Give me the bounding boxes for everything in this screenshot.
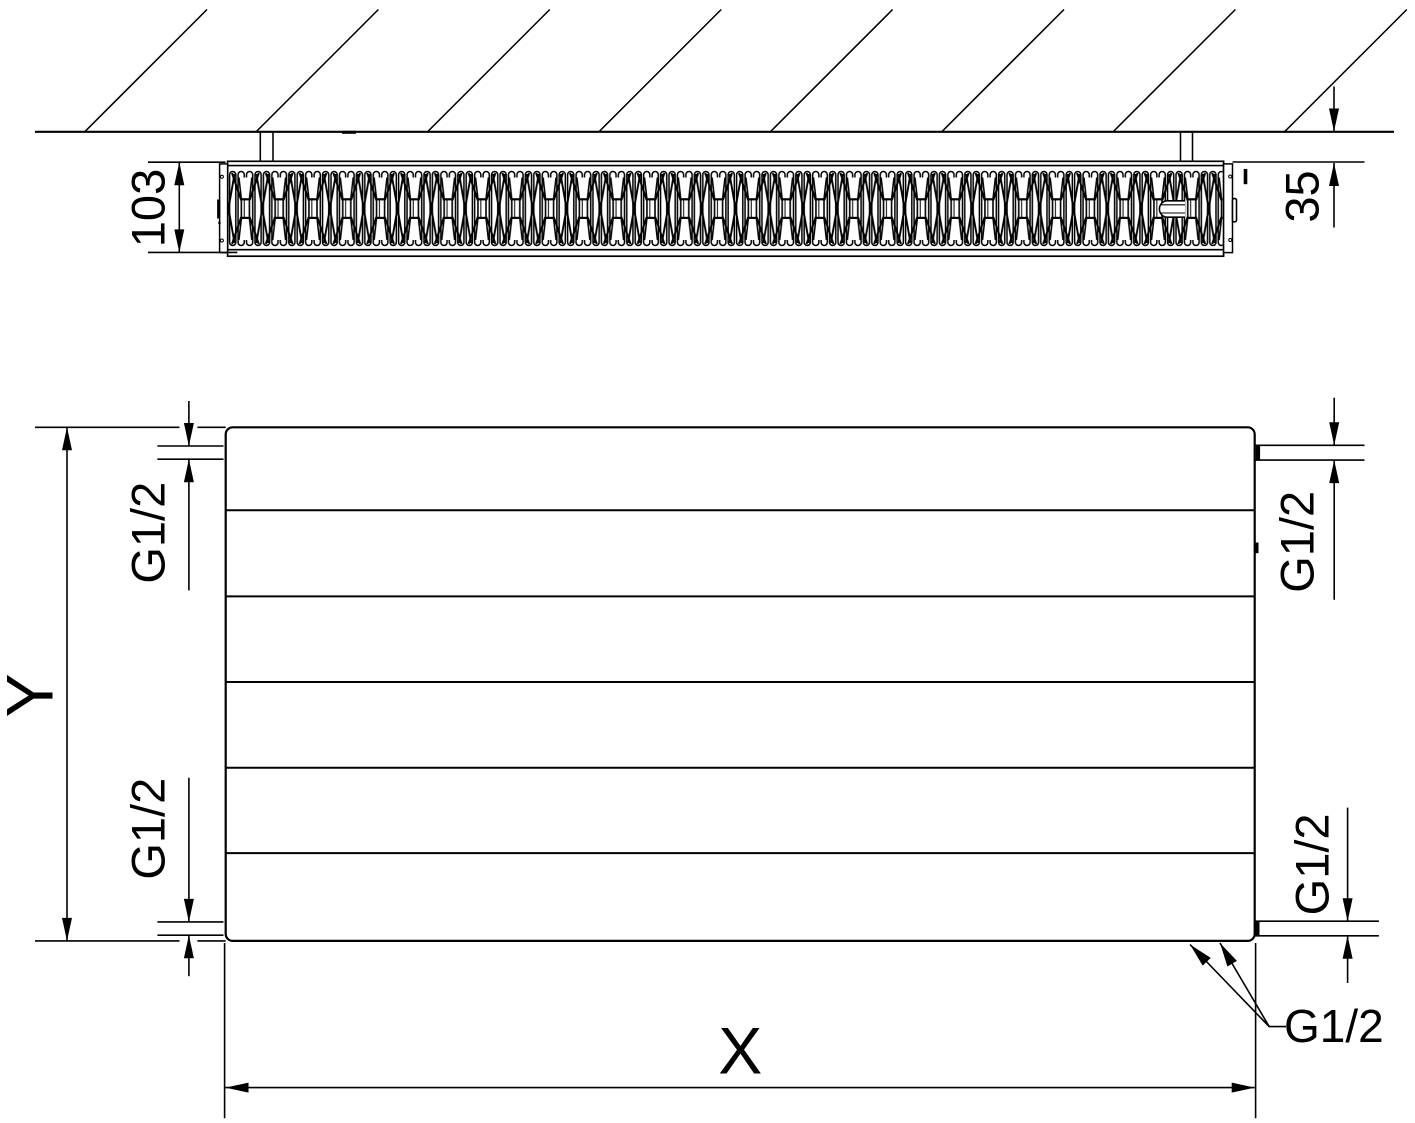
svg-text:35: 35 xyxy=(1276,170,1329,222)
svg-text:G1/2: G1/2 xyxy=(1270,491,1323,593)
svg-text:103: 103 xyxy=(121,169,174,247)
svg-text:G1/2: G1/2 xyxy=(122,482,175,584)
svg-text:Y: Y xyxy=(0,673,67,717)
svg-text:G1/2: G1/2 xyxy=(122,778,175,880)
svg-text:G1/2: G1/2 xyxy=(1284,1000,1384,1052)
svg-text:G1/2: G1/2 xyxy=(1285,813,1338,915)
svg-text:X: X xyxy=(718,1013,762,1087)
